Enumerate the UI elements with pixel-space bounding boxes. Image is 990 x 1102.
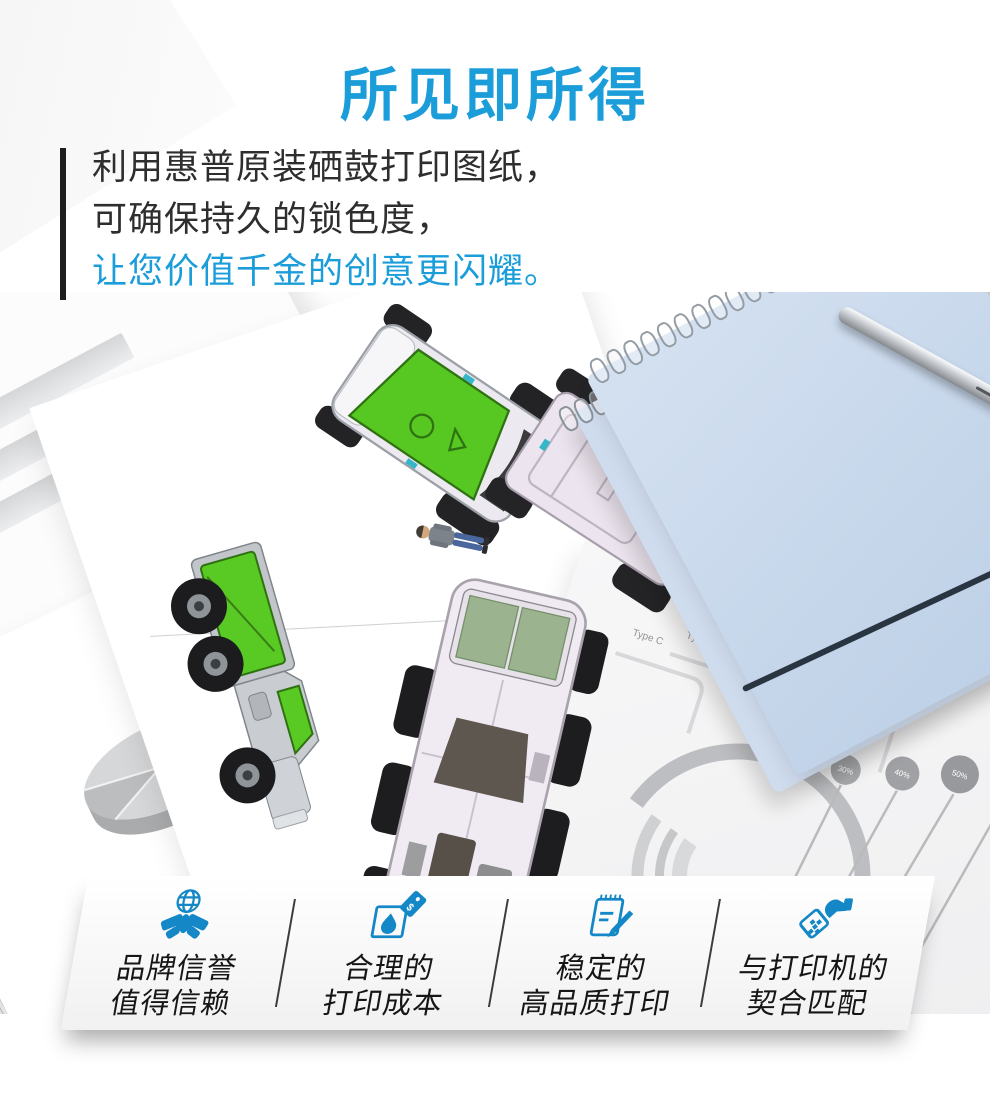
feature-card: 品牌信誉 值得信赖 $ 合理的 打印成本 (61, 876, 935, 1030)
notepad-pencil-icon (575, 888, 646, 948)
feature-line-2: 契合匹配 (744, 987, 870, 1022)
feature-line-2: 值得信赖 (107, 987, 233, 1022)
feature-brand: 品牌信誉 值得信赖 (61, 876, 298, 1030)
feature-line-1: 稳定的 (553, 952, 649, 987)
type-label: Type C (631, 628, 665, 648)
feature-match: 与打印机的 契合匹配 (698, 876, 935, 1030)
drop-price-tag-icon: $ (363, 888, 434, 948)
intro-line-2: 可确保持久的锁色度， (92, 194, 560, 246)
feature-quality: 稳定的 高品质打印 (485, 876, 722, 1030)
feature-line-2: 高品质打印 (517, 987, 673, 1022)
hand-toner-icon (787, 888, 858, 948)
page-title: 所见即所得 (0, 48, 990, 132)
intro-line-1: 利用惠普原装硒鼓打印图纸， (92, 142, 560, 194)
feature-line-2: 打印成本 (320, 987, 446, 1022)
feature-line-1: 合理的 (341, 952, 437, 987)
scale-person-print (408, 490, 504, 564)
intro-block: 利用惠普原装硒鼓打印图纸， 可确保持久的锁色度， 让您价值千金的创意更闪耀。 (60, 142, 560, 300)
feature-line-1: 品牌信誉 (114, 952, 240, 987)
intro-line-3: 让您价值千金的创意更闪耀。 (92, 246, 560, 298)
feature-cost: $ 合理的 打印成本 (273, 876, 510, 1030)
handshake-globe-icon (150, 888, 221, 948)
elastic-band (742, 510, 990, 692)
intro-accent-bar (60, 148, 66, 300)
promo-page: 所见即所得 利用惠普原装硒鼓打印图纸， 可确保持久的锁色度， 让您价值千金的创意… (0, 0, 990, 1102)
feature-line-1: 与打印机的 (735, 952, 891, 987)
